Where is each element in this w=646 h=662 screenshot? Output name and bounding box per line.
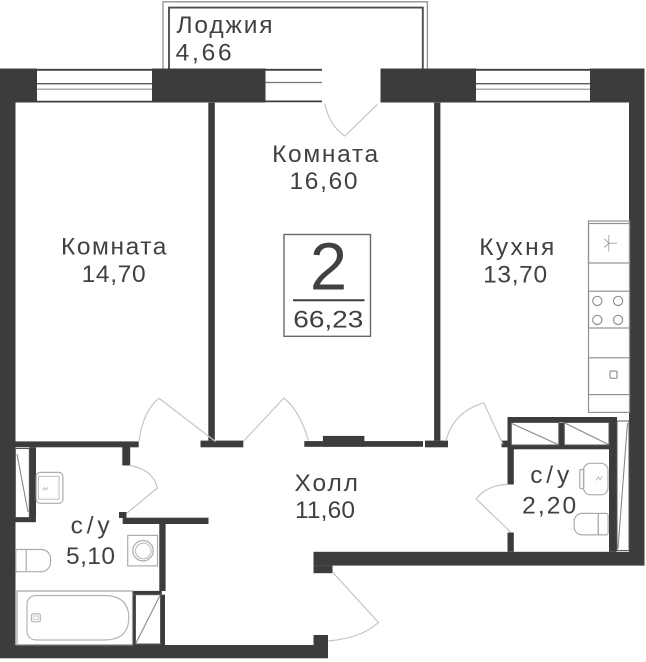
svg-text:с/у: с/у	[71, 513, 111, 540]
svg-text:4,66: 4,66	[176, 39, 232, 66]
svg-text:14,70: 14,70	[82, 261, 146, 288]
svg-text:2,20: 2,20	[522, 492, 576, 519]
svg-text:2: 2	[310, 230, 347, 305]
svg-text:5,10: 5,10	[66, 543, 115, 570]
svg-text:13,70: 13,70	[483, 262, 547, 289]
svg-text:16,60: 16,60	[290, 168, 358, 195]
svg-text:66,23: 66,23	[293, 307, 363, 334]
svg-text:с/у: с/у	[530, 462, 570, 489]
svg-text:Комната: Комната	[61, 234, 167, 261]
svg-text:Кухня: Кухня	[479, 234, 554, 261]
svg-text:11,60: 11,60	[295, 497, 355, 524]
svg-text:Комната: Комната	[272, 141, 378, 168]
